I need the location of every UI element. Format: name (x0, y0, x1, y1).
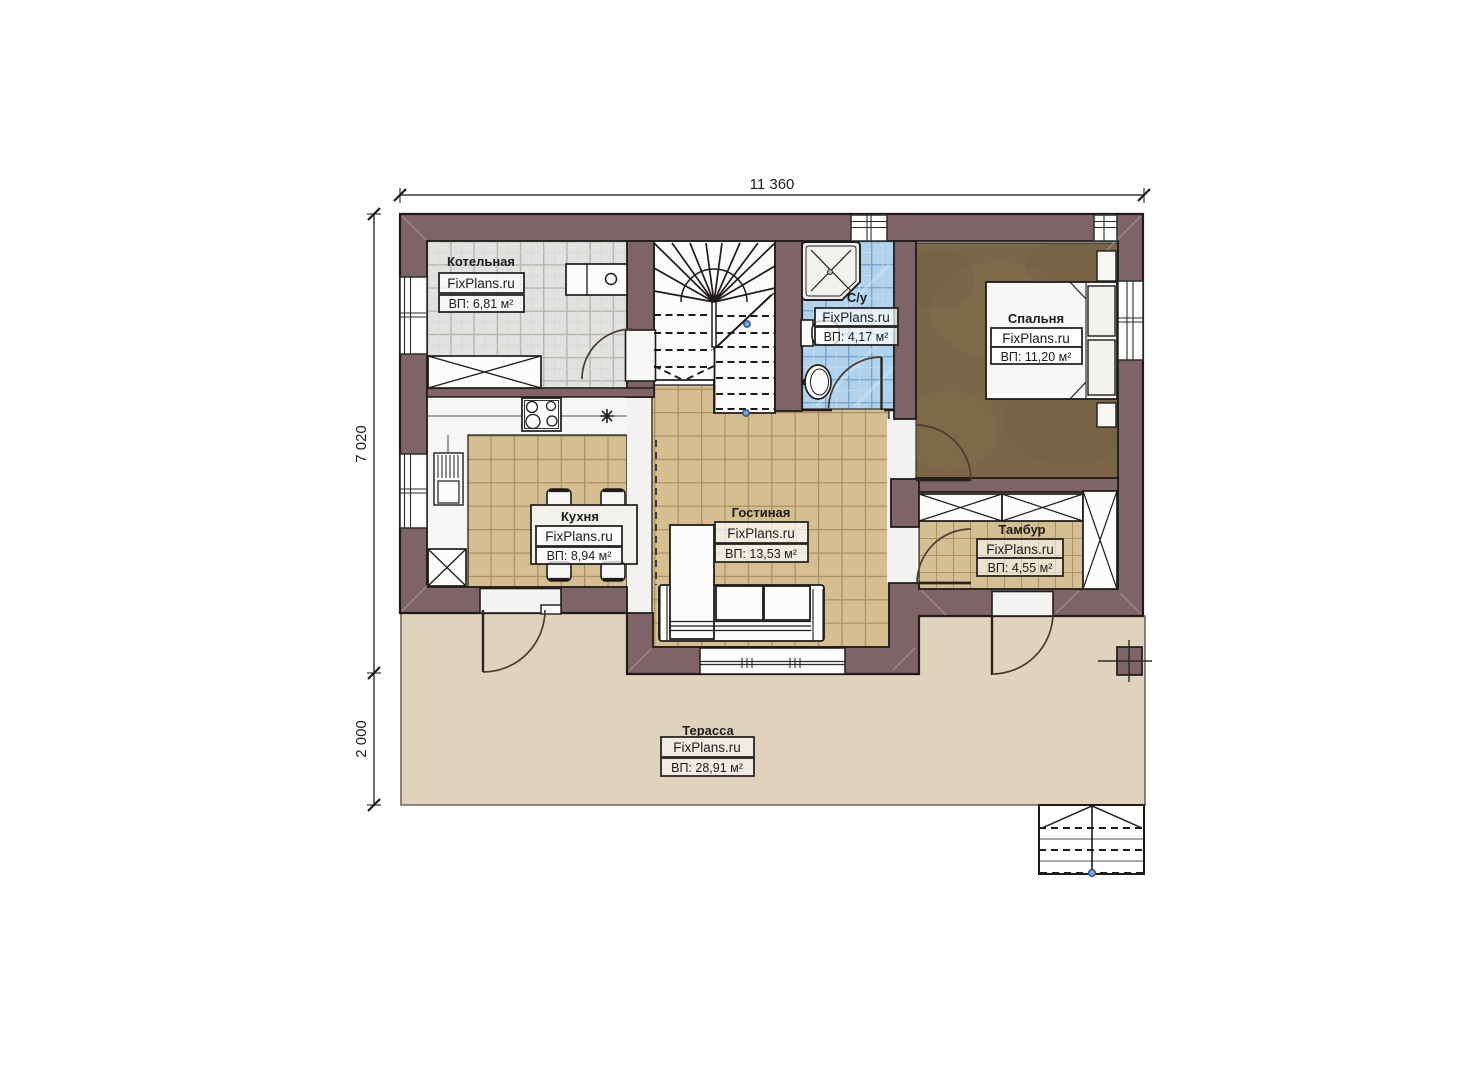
svg-text:Гостиная: Гостиная (732, 505, 791, 520)
svg-text:7 020: 7 020 (353, 425, 370, 463)
svg-text:ВП: 4,55 м²: ВП: 4,55 м² (988, 561, 1053, 575)
svg-text:С/у: С/у (847, 290, 868, 305)
svg-text:Терасса: Терасса (682, 723, 734, 738)
svg-text:Кухня: Кухня (561, 509, 599, 524)
svg-text:Котельная: Котельная (447, 254, 515, 269)
svg-text:ВП: 6,81 м²: ВП: 6,81 м² (449, 297, 514, 311)
svg-text:FixPlans.ru: FixPlans.ru (673, 740, 741, 755)
svg-text:ВП: 28,91 м²: ВП: 28,91 м² (671, 761, 743, 775)
svg-text:FixPlans.ru: FixPlans.ru (822, 310, 890, 325)
svg-text:FixPlans.ru: FixPlans.ru (545, 529, 613, 544)
svg-text:FixPlans.ru: FixPlans.ru (727, 526, 795, 541)
svg-text:Спальня: Спальня (1008, 311, 1064, 326)
svg-text:ВП: 13,53 м²: ВП: 13,53 м² (725, 547, 797, 561)
svg-text:FixPlans.ru: FixPlans.ru (447, 276, 515, 291)
svg-text:Тамбур: Тамбур (998, 522, 1045, 537)
svg-text:FixPlans.ru: FixPlans.ru (986, 542, 1054, 557)
svg-text:ВП: 8,94 м²: ВП: 8,94 м² (547, 549, 612, 563)
svg-text:ВП: 4,17 м²: ВП: 4,17 м² (824, 330, 889, 344)
svg-text:FixPlans.ru: FixPlans.ru (1002, 331, 1070, 346)
svg-text:11 360: 11 360 (750, 176, 795, 193)
svg-text:ВП: 11,20 м²: ВП: 11,20 м² (1001, 350, 1072, 364)
svg-text:2 000: 2 000 (353, 720, 370, 758)
